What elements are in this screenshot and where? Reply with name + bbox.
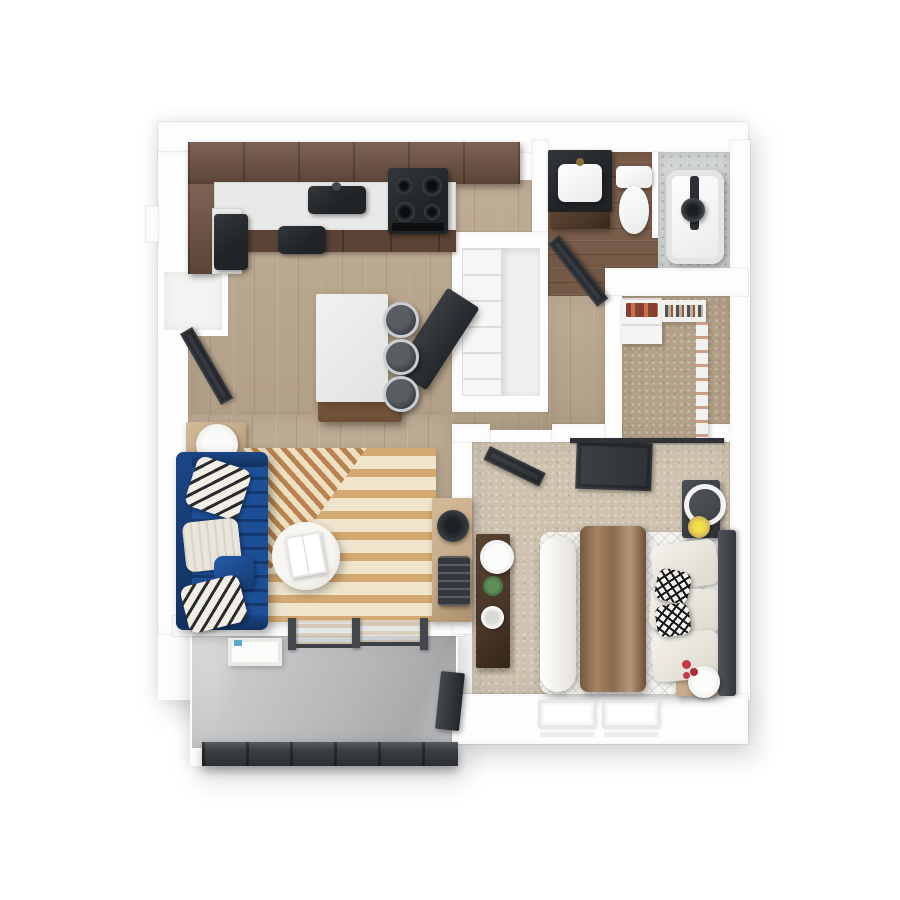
console-blue-item	[234, 640, 242, 646]
cabinet-drawer	[278, 226, 326, 254]
slat-basket	[438, 556, 470, 606]
red-flower	[682, 660, 691, 669]
gold-candle-dish	[688, 516, 710, 538]
area-rug	[244, 448, 436, 622]
vanity-lower-shelf	[550, 212, 610, 228]
toilet-bowl	[619, 186, 649, 234]
wall-bedroom-south	[452, 694, 748, 744]
balcony-railing	[202, 742, 458, 766]
coffee-table-book	[285, 531, 328, 579]
burner	[396, 178, 412, 194]
red-flower	[690, 668, 698, 676]
closet-top-rod	[662, 300, 706, 322]
shower-head	[681, 198, 705, 222]
bedroom-window	[602, 700, 660, 728]
slider-jamb	[288, 618, 296, 650]
potted-plant	[483, 576, 503, 596]
bar-stool	[383, 302, 419, 338]
table-fan	[480, 540, 514, 574]
sink-faucet	[332, 182, 341, 191]
closet-side-rod	[696, 322, 708, 438]
upper-cabinets	[188, 142, 520, 184]
headboard	[718, 530, 736, 696]
brown-throw-blanket	[580, 526, 646, 692]
barn-door	[575, 441, 653, 492]
stove-control-band	[392, 223, 444, 231]
slider-track	[360, 642, 420, 646]
left-cabinet-column	[188, 184, 214, 274]
rolled-duvet-foot	[540, 536, 576, 692]
window-sill	[540, 732, 594, 737]
hallway-floor	[548, 296, 608, 430]
burner	[422, 176, 442, 196]
slider-jamb	[352, 618, 360, 648]
hanging-clothes	[665, 305, 703, 317]
folded-clothes	[626, 303, 658, 317]
sliding-glass-panel	[296, 620, 352, 646]
accent-pillow-bw	[654, 602, 692, 638]
accent-pillow-bw	[653, 567, 693, 605]
range-stove	[388, 168, 448, 234]
wall-left-step	[146, 206, 158, 242]
rug-diagonal-section	[244, 448, 436, 622]
burner	[395, 202, 415, 222]
barn-door-rail	[570, 438, 724, 443]
bedroom-window	[538, 700, 596, 728]
console-fan	[437, 510, 469, 542]
utility-interior	[502, 248, 540, 396]
kitchen-island	[316, 294, 388, 402]
vanity-sink-basin	[558, 164, 602, 202]
wall-closet-west	[605, 296, 622, 442]
burner	[424, 204, 440, 220]
window-sill	[604, 732, 658, 737]
entry-coat-niche	[158, 266, 228, 336]
sliding-glass-panel	[360, 620, 420, 644]
wall-bedroom-north-a	[452, 424, 490, 442]
slider-track	[296, 644, 352, 648]
humidifier	[481, 606, 504, 629]
red-flower	[683, 672, 690, 679]
bar-stool	[383, 376, 419, 412]
vanity-faucet	[576, 158, 584, 166]
refrigerator	[214, 214, 248, 270]
wall-bathroom-south	[605, 268, 748, 296]
slider-jamb	[420, 618, 428, 650]
bar-stool	[383, 339, 419, 375]
toilet-tank	[616, 166, 652, 188]
floor-plan-stage	[0, 0, 900, 900]
